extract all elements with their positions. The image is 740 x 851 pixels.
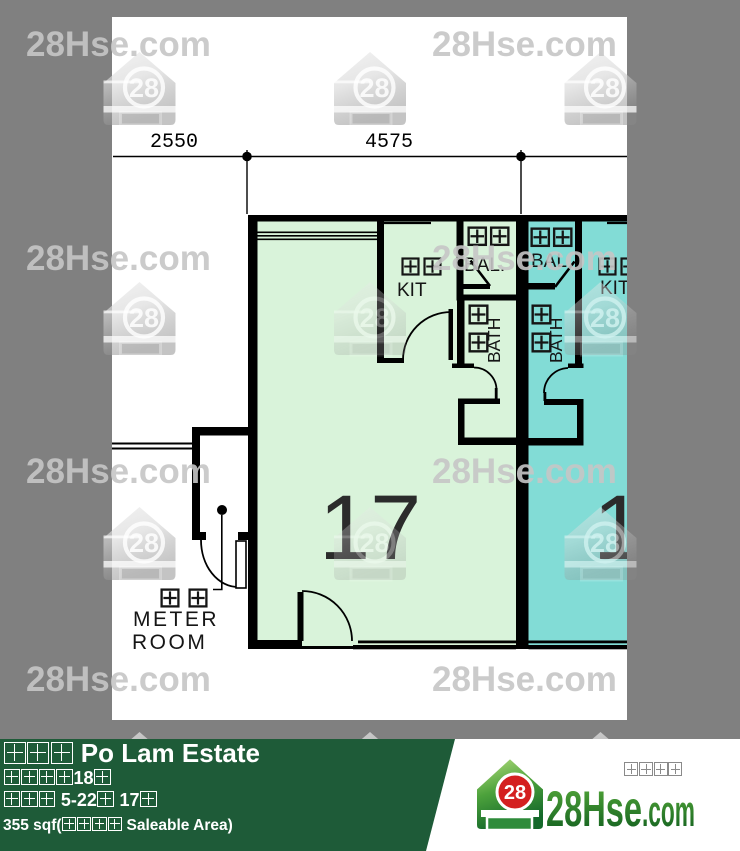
svg-text:28Hse.com: 28Hse.com <box>26 239 211 278</box>
svg-text:28Hse.com: 28Hse.com <box>26 452 211 491</box>
svg-text:28: 28 <box>504 782 526 804</box>
svg-text:28Hse.com: 28Hse.com <box>432 25 617 64</box>
svg-text:28Hse.com: 28Hse.com <box>432 452 617 491</box>
svg-text:28Hse.com: 28Hse.com <box>26 25 211 64</box>
svg-text:28Hse.com: 28Hse.com <box>432 660 617 699</box>
svg-text:28Hse.com: 28Hse.com <box>432 239 617 278</box>
svg-text:28Hse: 28Hse <box>546 781 642 837</box>
svg-text:.com: .com <box>642 787 695 836</box>
svg-text:28Hse.com: 28Hse.com <box>26 660 211 699</box>
